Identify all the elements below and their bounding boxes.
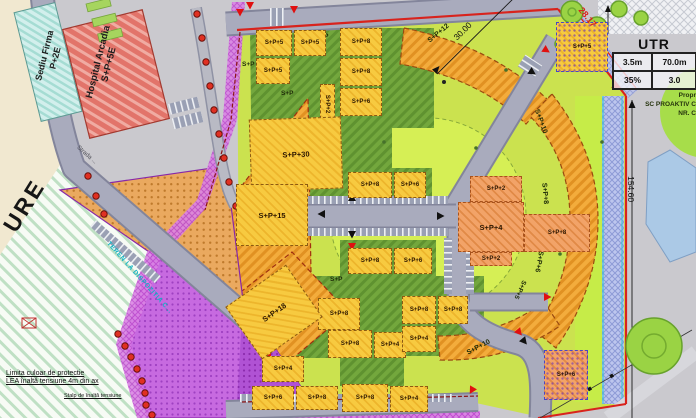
utr-cell: 35% — [613, 71, 652, 89]
teren-dispozitia-label: TEREN LA DISPOZITIA C... — [105, 240, 174, 315]
owner-line3: NR. C — [644, 110, 696, 119]
utr-info-box: UTR 3.5m 70.0m 35% 3.0 — [612, 36, 696, 90]
utr-cell: 70.0m — [652, 53, 696, 71]
dimension-north: 30.00 — [452, 20, 474, 42]
lea-note-line1: Limita culoar de protectie — [6, 370, 99, 378]
site-plan-canvas: S+PS+PS+PS+PS+PS+P+12S+P+10S+P+8S+P+6S+P… — [0, 0, 696, 418]
dimension-east: 154.60 — [626, 176, 636, 202]
utr-title: UTR — [612, 36, 696, 52]
lea-note-line2: LEA înaltă tensiune 4m din ax — [6, 378, 99, 386]
dimension-northeast: 28.17 — [576, 5, 599, 29]
neighbor-label-hospital: Hospital Arcadia S+P+5E — [81, 14, 126, 113]
street-name-label: Strada ... — [75, 145, 98, 166]
partial-area-text: URE — [0, 174, 52, 237]
utr-cell: 3.0 — [652, 71, 696, 89]
owner-note: Propr SC PROAKTIV C NR. C — [644, 92, 696, 118]
owner-line2: SC PROAKTIV C — [644, 101, 696, 110]
owner-line1: Propr — [644, 92, 696, 101]
labels-layer: Sediu Firma P+2E Hospital Arcadia S+P+5E… — [0, 0, 696, 418]
utr-table: 3.5m 70.0m 35% 3.0 — [612, 52, 696, 90]
neighbor-label-sediu: Sediu Firma P+2E — [29, 13, 70, 100]
utr-cell: 3.5m — [613, 53, 652, 71]
pylon-note: Stalp de înaltă tensiune — [64, 393, 122, 400]
lea-protection-note: Limita culoar de protectie LEA înaltă te… — [6, 370, 99, 387]
